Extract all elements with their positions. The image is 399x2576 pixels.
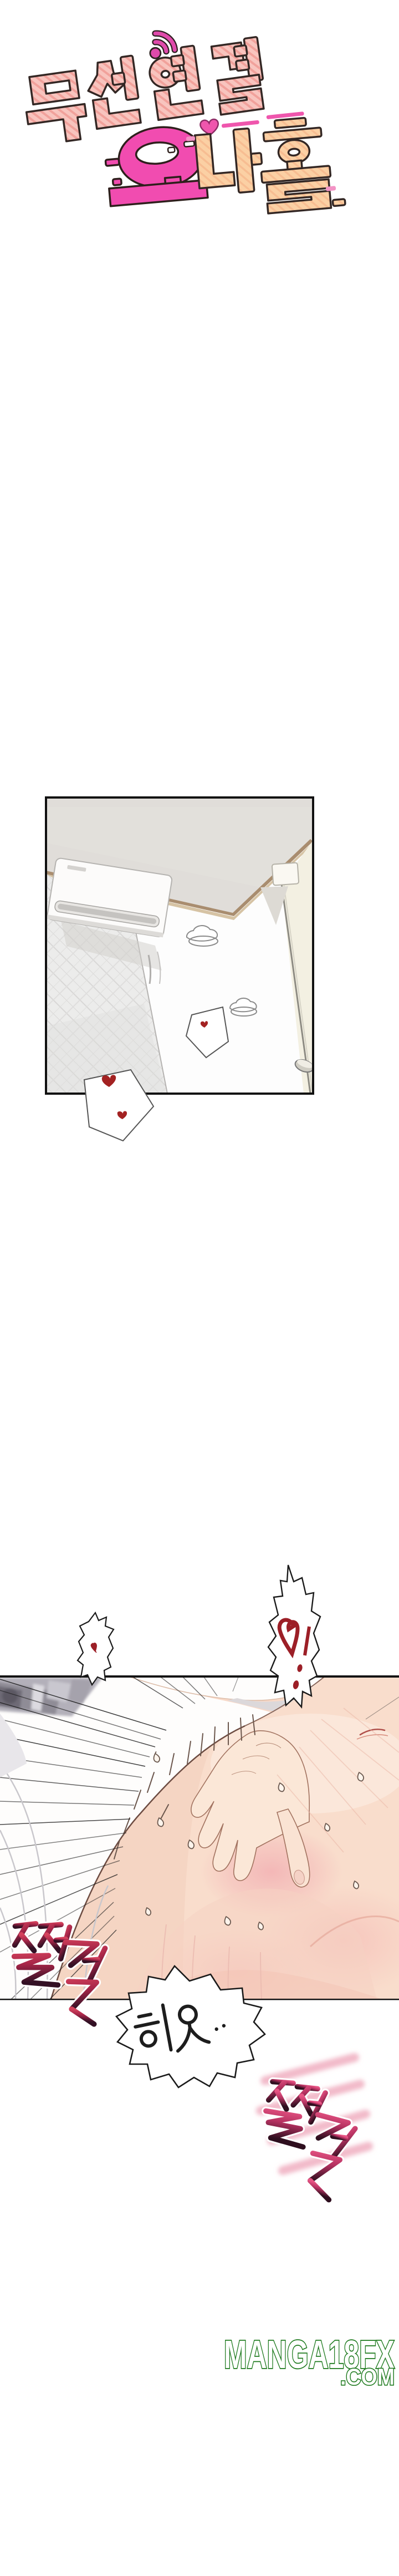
svg-text:.COM: .COM bbox=[340, 2364, 395, 2390]
